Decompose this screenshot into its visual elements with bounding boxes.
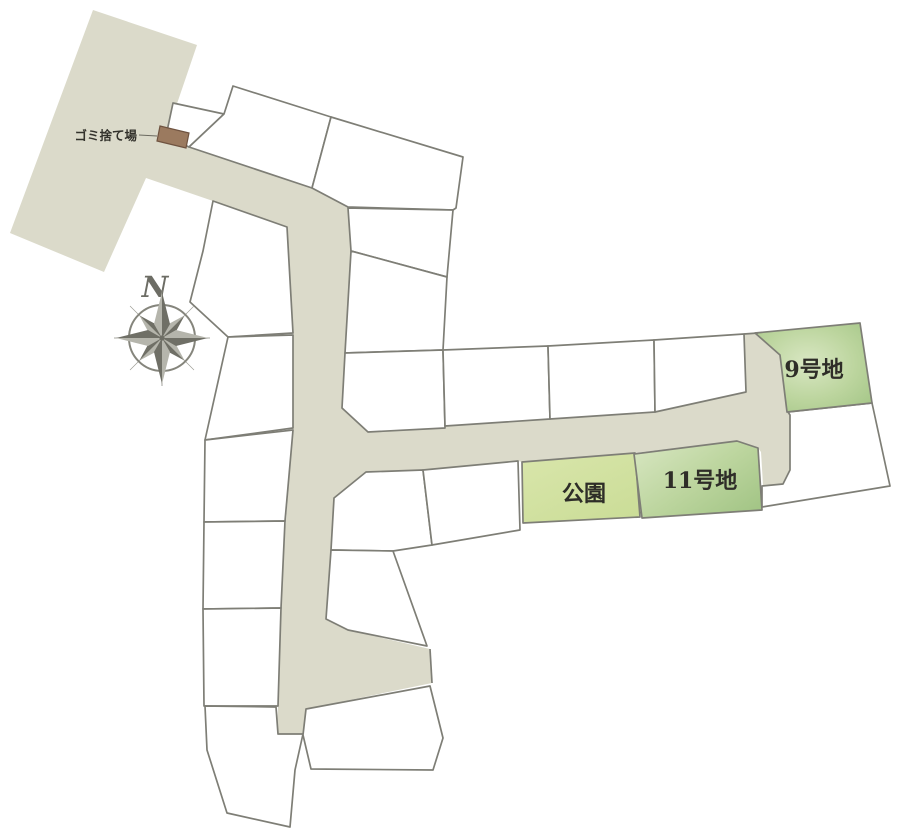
lot-9-label: 9号地 <box>784 357 843 383</box>
north-boundary-segment <box>744 333 758 334</box>
site-plan-map: ゴミ捨て場 9号地 11号地 公園 N <box>0 0 900 839</box>
lot-south-row-2 <box>423 461 520 545</box>
park-label: 公園 <box>562 481 606 507</box>
garbage-label: ゴミ捨て場 <box>74 128 137 143</box>
lot-north-row-1 <box>342 350 445 432</box>
lot-north-row-3 <box>548 340 655 419</box>
lot-11-label: 11号地 <box>663 468 738 494</box>
site-plan-canvas: ゴミ捨て場 9号地 11号地 公園 N <box>0 0 900 839</box>
lot-west-5 <box>203 608 281 706</box>
lot-west-4 <box>203 521 285 609</box>
compass-north-label: N <box>141 270 170 304</box>
lot-west-3 <box>204 430 293 522</box>
lot-west-2 <box>205 335 293 440</box>
lot-top-3 <box>312 117 463 210</box>
lot-north-row-2 <box>443 346 550 426</box>
